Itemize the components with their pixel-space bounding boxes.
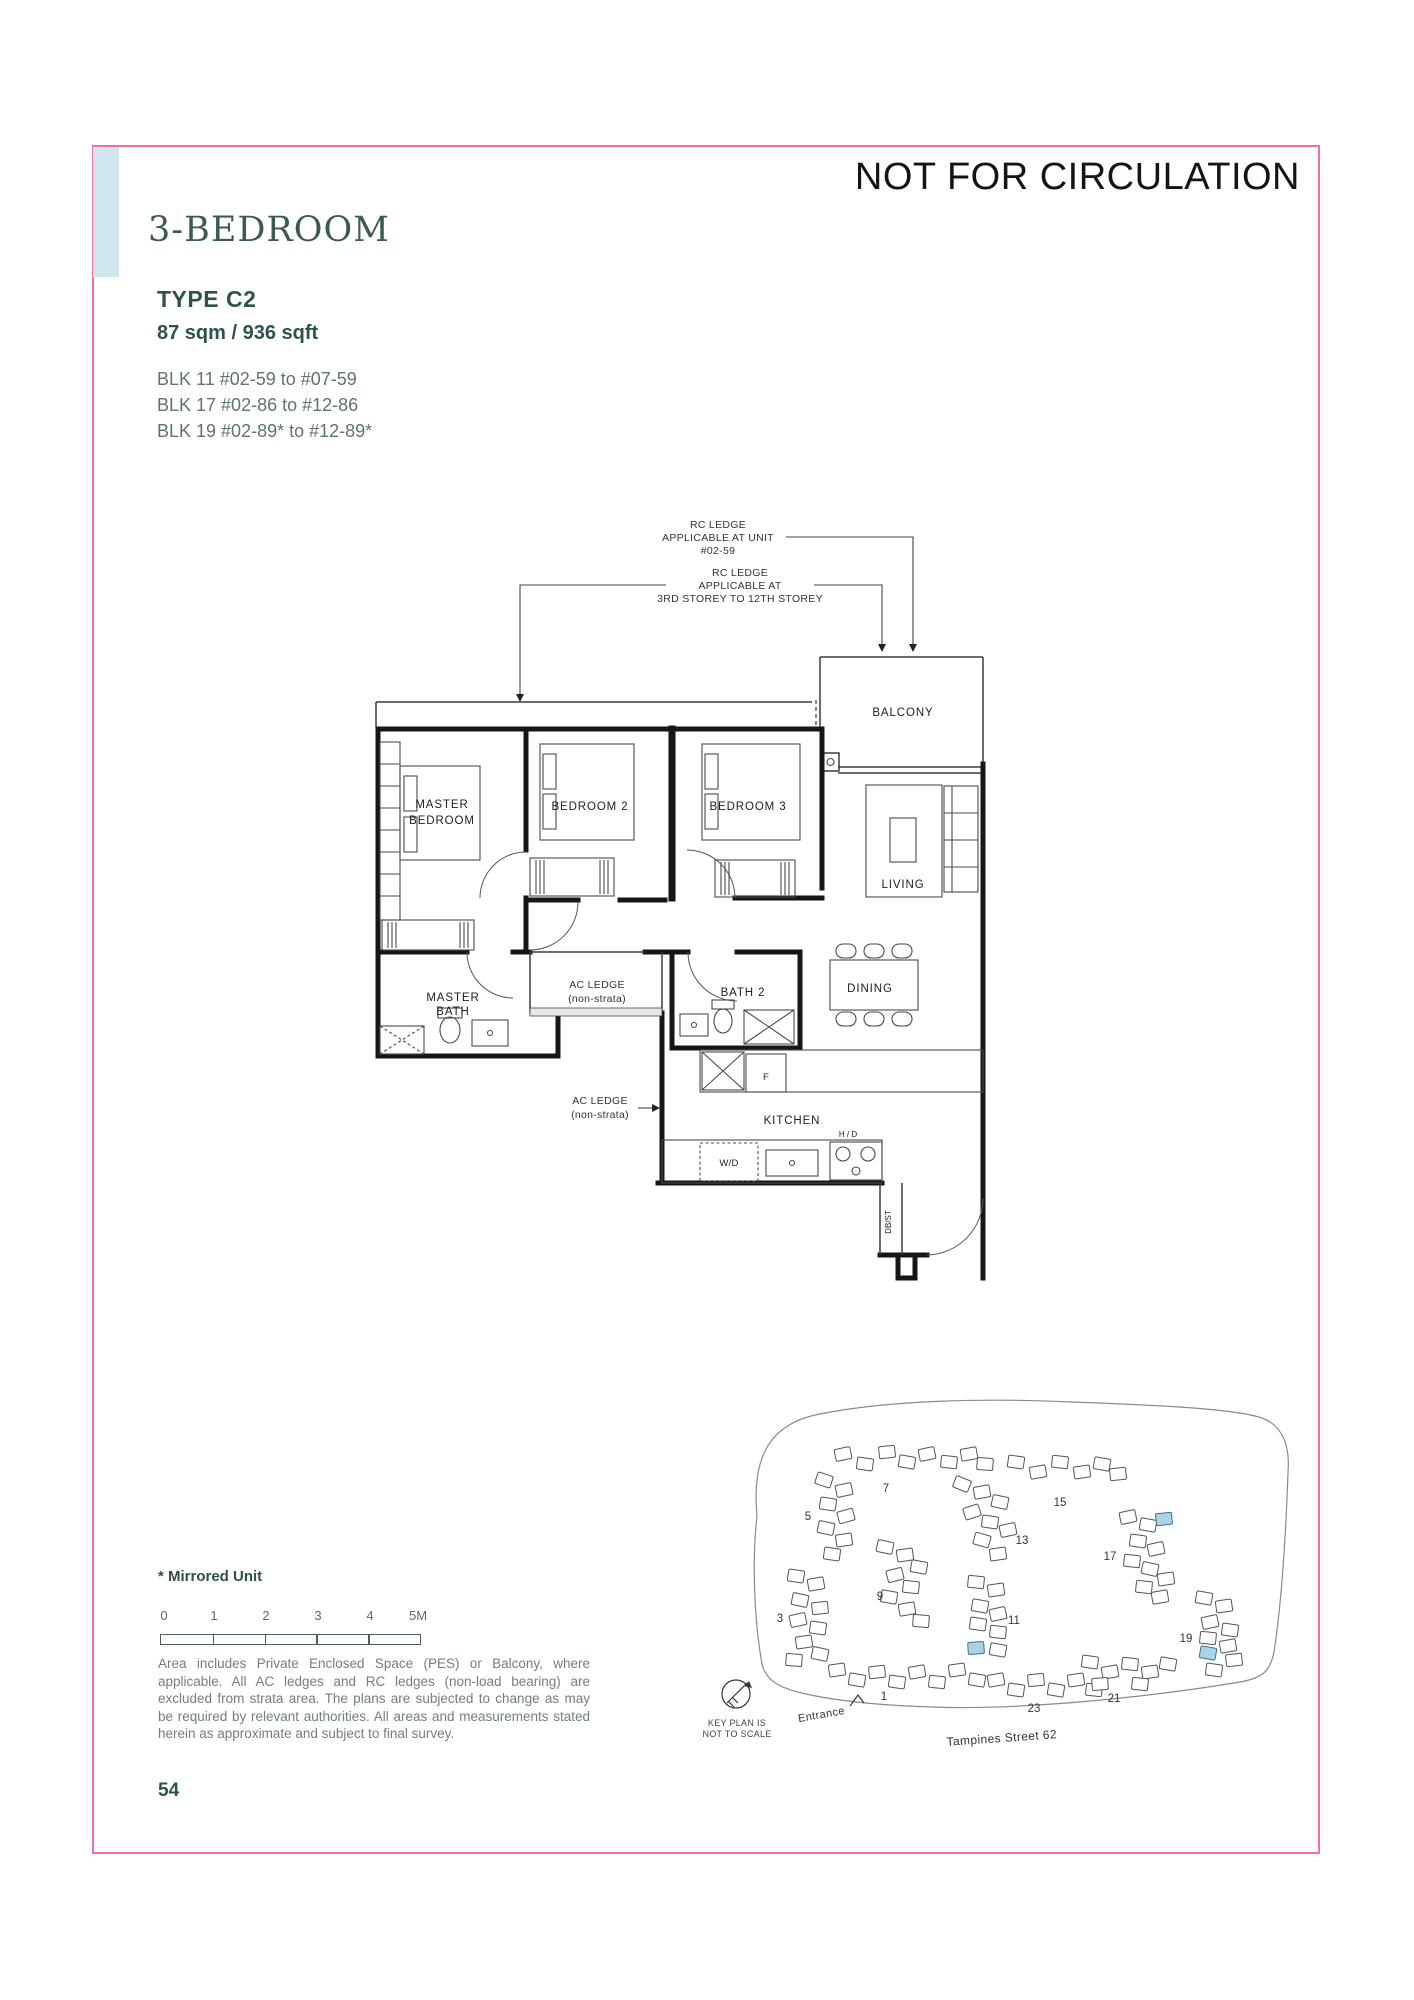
ac-ledge-2-annotation: AC LEDGE (non-strata) [571,1095,660,1121]
cluster-label: 3 [777,1613,783,1625]
block-cluster-7 [834,1445,993,1471]
room-label: BATH 2 [721,987,766,999]
room-label: BEDROOM 2 [551,801,628,813]
block-cluster-9 [876,1539,929,1627]
cluster-label: 21 [1108,1693,1121,1705]
bedroom-2: BEDROOM 2 [530,744,634,896]
cluster-label: 19 [1180,1633,1193,1645]
cluster-label: 11 [1008,1615,1020,1627]
block-cluster-21 [1081,1655,1177,1691]
section-color-tab [93,147,119,277]
highlighted-unit-blk17 [1155,1512,1172,1526]
scale-tick-label: 1 [210,1608,217,1623]
washer-label: W/D [719,1158,738,1169]
scale-tick-label: 4 [366,1608,373,1623]
hob-label: H / D [839,1130,857,1139]
room-label: KITCHEN [764,1115,821,1127]
entrance: DB/ST [880,1183,983,1255]
fridge-label: F [763,1072,769,1083]
block-cluster-19 [1195,1591,1243,1677]
dbst-label: DB/ST [884,1210,893,1234]
unit-type: TYPE C2 [157,286,256,313]
room-label: BEDROOM 3 [709,801,786,813]
ac-ledge-label: (non-strata) [571,1109,629,1121]
living-room: LIVING [866,785,978,897]
scale-numbers: 0 1 2 3 4 5M [160,1608,422,1624]
room-label: BALCONY [872,707,933,719]
brochure-page: NOT FOR CIRCULATION 3-BEDROOM TYPE C2 87… [0,0,1414,2000]
north-compass-icon [722,1680,752,1708]
cluster-label: 1 [881,1691,887,1703]
annotation-text: RC LEDGE [712,567,768,579]
cluster-label: 23 [1028,1703,1041,1715]
annotation-text: APPLICABLE AT [698,580,781,592]
cluster-label: 15 [1054,1497,1067,1509]
bath-2: BATH 2 [680,987,794,1044]
block-line: BLK 11 #02-59 to #07-59 [157,366,372,392]
block-line: BLK 17 #02-86 to #12-86 [157,392,372,418]
key-plan: 7 15 5 13 9 17 3 11 19 1 23 21 KEY PLAN … [555,1380,1315,1765]
cluster-label: 13 [1016,1535,1029,1547]
disclaimer-text: Area includes Private Enclosed Space (PE… [158,1655,590,1743]
bedroom-3: BEDROOM 3 [702,744,800,897]
floor-plan: RC LEDGE APPLICABLE AT UNIT #02-59 RC LE… [350,485,1030,1295]
cluster-label: 17 [1104,1551,1117,1563]
street-label: Tampines Street 62 [946,1727,1057,1749]
room-label: MASTER [415,799,468,811]
keyplan-caption: NOT TO SCALE [702,1729,771,1739]
mirrored-unit-note: * Mirrored Unit [158,1568,262,1585]
unit-area: 87 sqm / 936 sqft [157,322,318,345]
annotation-text: #02-59 [701,545,736,557]
dining-area: DINING [830,944,918,1026]
entrance-label: Entrance [797,1705,846,1725]
cluster-label: 9 [877,1591,883,1603]
scale-tick-label: 0 [160,1608,167,1623]
rc-ledge-annotation-storey: RC LEDGE APPLICABLE AT 3RD STOREY TO 12T… [516,567,886,702]
ac-ledge-1: AC LEDGE (non-strata) [530,952,662,1016]
block-list: BLK 11 #02-59 to #07-59 BLK 17 #02-86 to… [157,366,372,444]
block-cluster-3 [786,1569,829,1667]
block-line: BLK 19 #02-89* to #12-89* [157,418,372,444]
watermark: NOT FOR CIRCULATION [855,156,1300,199]
page-title: 3-BEDROOM [148,210,390,250]
rc-ledge-strip [376,700,816,729]
block-cluster-23 [987,1673,1103,1698]
annotation-text: RC LEDGE [690,519,746,531]
master-bath: MASTER BATH [380,992,508,1054]
highlighted-unit-blk19 [1199,1646,1217,1661]
room-label: BATH [436,1006,469,1018]
room-label: LIVING [881,879,924,891]
master-bedroom: MASTER BEDROOM [380,742,480,950]
entrance-marker: Entrance [797,1695,864,1725]
keyplan-caption: KEY PLAN IS [708,1718,766,1728]
ac-ledge-label: (non-strata) [568,993,626,1005]
annotation-text: APPLICABLE AT UNIT [662,532,774,544]
block-cluster-5 [815,1472,856,1561]
scale-tick-label: 2 [262,1608,269,1623]
ac-ledge-label: AC LEDGE [569,979,625,991]
ac-ledge-label: AC LEDGE [572,1095,628,1107]
room-label: DINING [847,983,893,995]
highlighted-unit-blk11 [968,1641,985,1654]
scale-tick-label: 5M [409,1608,427,1623]
room-label: MASTER [426,992,479,1004]
block-cluster-15 [1007,1455,1126,1481]
scale-bar [160,1634,421,1645]
block-cluster-1 [828,1663,986,1689]
cluster-label: 7 [883,1483,889,1495]
annotation-text: 3RD STOREY TO 12TH STOREY [657,593,823,605]
block-cluster-13 [952,1475,1017,1561]
kitchen: F KITCHEN W/D H / D [662,1050,983,1183]
page-number: 54 [158,1780,179,1802]
cluster-label: 5 [805,1511,811,1523]
scale-tick-label: 3 [314,1608,321,1623]
room-label: BEDROOM [409,815,475,827]
